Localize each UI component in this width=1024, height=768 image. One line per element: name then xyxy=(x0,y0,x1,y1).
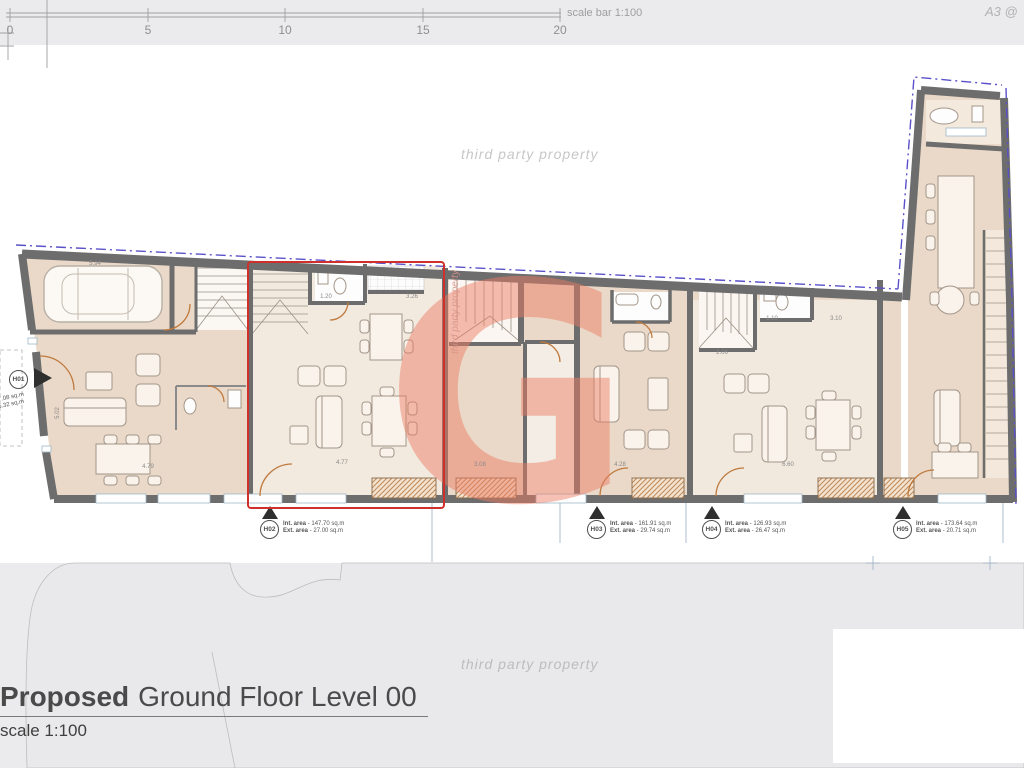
dimension-text: 4.79 xyxy=(142,464,154,470)
dimension-text: 3.26 xyxy=(406,294,418,300)
title-rest: Ground Floor Level 00 xyxy=(138,681,417,712)
unit-id-badge: H02 xyxy=(260,520,279,539)
int-area-value: - 161.91 sq.m xyxy=(635,521,672,527)
int-area-label: Int. area xyxy=(725,521,748,527)
int-area-value: - 126.93 sq.m xyxy=(750,521,787,527)
dimension-text: 4.28 xyxy=(614,462,626,468)
dimension-text: 4.77 xyxy=(336,460,348,466)
drawing-sheet: G third party property 0 5 10 15 20 scal… xyxy=(0,0,1024,768)
int-area-value: - 173.64 sq.m xyxy=(941,521,978,527)
int-area-label: Int. area xyxy=(283,521,306,527)
unit-id-badge: H03 xyxy=(587,520,606,539)
watermark-text: third party property xyxy=(461,146,599,162)
ext-area-label: Ext. area xyxy=(725,528,750,534)
unit-label-h04: H04 Int. area - 126.93 sq.m Ext. area - … xyxy=(702,520,786,539)
title-bold: Proposed xyxy=(0,681,129,712)
int-area-label: Int. area xyxy=(916,521,939,527)
ruler-tick: 0 xyxy=(7,23,14,37)
sheet-size-note: A3 @ xyxy=(985,4,1018,19)
watermark-text: third party property xyxy=(461,656,599,672)
ruler-tick: 15 xyxy=(416,23,429,37)
unit-id-badge: H04 xyxy=(702,520,721,539)
int-area-value: - 147.70 sq.m xyxy=(308,521,345,527)
dimension-text: 2.06 xyxy=(716,350,728,356)
dimension-text: 5.94 xyxy=(89,261,101,267)
unit-label-h03: H03 Int. area - 161.91 sq.m Ext. area - … xyxy=(587,520,671,539)
ruler-tick: 5 xyxy=(145,23,152,37)
unit-label-h05: H05 Int. area - 173.64 sq.m Ext. area - … xyxy=(893,520,977,539)
unit-label-h01: H01 xyxy=(9,370,28,389)
ext-area-value: - 26.47 sq.m xyxy=(752,528,785,534)
scale-bar-label: scale bar 1:100 xyxy=(567,7,642,19)
unit-id-badge: H01 xyxy=(9,370,28,389)
ruler-tick: 10 xyxy=(278,23,291,37)
ext-area-value: - 20.71 sq.m xyxy=(943,528,976,534)
vertical-watermark-text: third party property xyxy=(450,269,461,354)
unit-id-badge: H05 xyxy=(893,520,912,539)
dimension-text: 1.20 xyxy=(320,294,332,300)
drawing-title: ProposedGround Floor Level 00 xyxy=(0,682,428,717)
drawing-scale-note: scale 1:100 xyxy=(0,721,87,741)
dimension-text: 3.10 xyxy=(830,316,842,322)
floor-plan: G third party property xyxy=(0,0,1024,768)
dimension-text: 1.10 xyxy=(766,316,778,322)
ext-area-label: Ext. area xyxy=(283,528,308,534)
dimension-text: 3.08 xyxy=(474,462,486,468)
dimension-text: 6.60 xyxy=(782,462,794,468)
ext-area-label: Ext. area xyxy=(916,528,941,534)
ext-area-value: - 29.74 sq.m xyxy=(637,528,670,534)
dimension-text: 5.02 xyxy=(55,407,61,419)
unit-label-h02: H02 Int. area - 147.70 sq.m Ext. area - … xyxy=(260,520,344,539)
ruler-tick: 20 xyxy=(553,23,566,37)
ext-area-label: Ext. area xyxy=(610,528,635,534)
ext-area-value: - 27.00 sq.m xyxy=(310,528,343,534)
int-area-label: Int. area xyxy=(610,521,633,527)
